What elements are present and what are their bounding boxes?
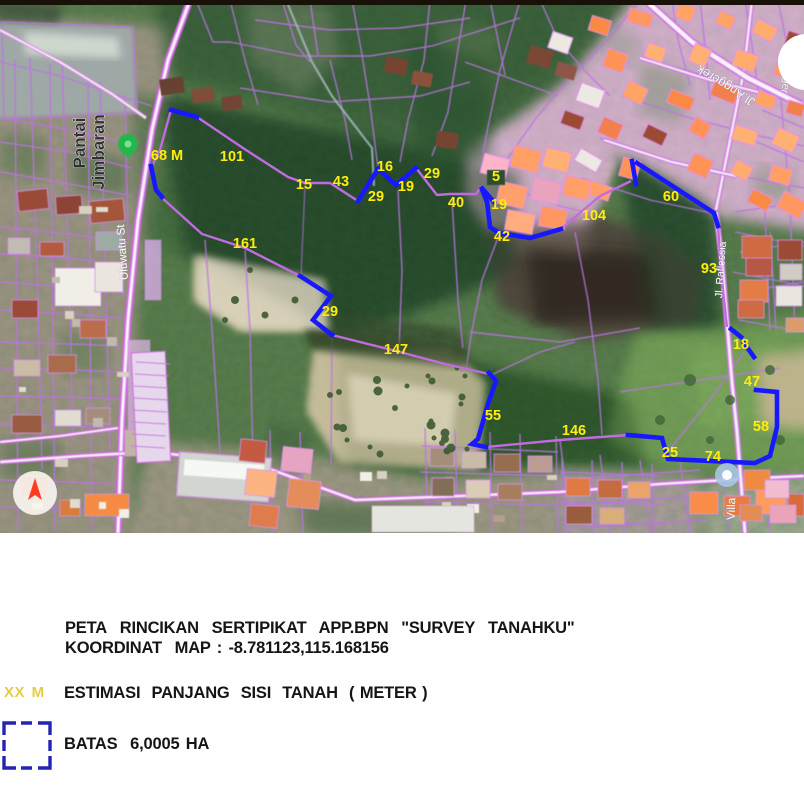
svg-text:29: 29: [368, 189, 384, 205]
svg-text:19: 19: [491, 197, 507, 213]
svg-text:15: 15: [296, 177, 312, 193]
svg-text:5: 5: [492, 169, 500, 185]
svg-text:18: 18: [733, 337, 749, 353]
svg-text:42: 42: [494, 229, 510, 245]
svg-text:Pantai: Pantai: [70, 117, 89, 168]
svg-text:29: 29: [322, 304, 338, 320]
svg-text:146: 146: [562, 423, 586, 439]
svg-text:16: 16: [377, 159, 393, 175]
svg-text:104: 104: [582, 208, 606, 224]
svg-text:19: 19: [398, 179, 414, 195]
svg-text:47: 47: [744, 374, 760, 390]
svg-text:58: 58: [753, 419, 769, 435]
svg-text:161: 161: [233, 236, 257, 252]
svg-text:68 M: 68 M: [151, 148, 183, 164]
svg-text:29: 29: [424, 166, 440, 182]
svg-text:40: 40: [448, 195, 464, 211]
svg-text:Jimbaran: Jimbaran: [89, 114, 108, 190]
svg-text:60: 60: [663, 189, 679, 205]
svg-text:147: 147: [384, 342, 408, 358]
svg-text:25: 25: [662, 445, 678, 461]
svg-text:43: 43: [333, 174, 349, 190]
svg-text:Villa: Villa: [724, 497, 739, 520]
svg-text:55: 55: [485, 408, 501, 424]
svg-text:74: 74: [705, 449, 721, 465]
svg-text:101: 101: [220, 149, 244, 165]
